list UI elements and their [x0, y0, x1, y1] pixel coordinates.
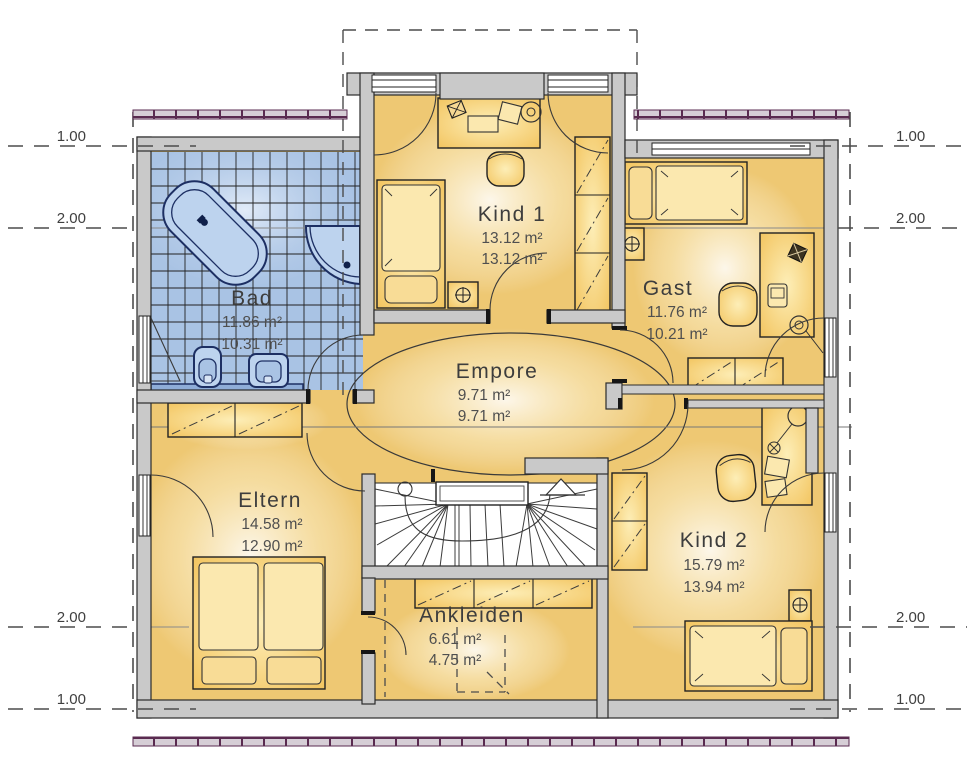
dim-1m-top-left: 1.00 [57, 128, 86, 145]
room-label-kind2: Kind 2 15.79 m² 13.94 m² [680, 529, 749, 596]
room-label-kind1: Kind 1 13.12 m² 13.12 m² [478, 203, 547, 268]
gast-top-window [652, 143, 810, 155]
wall-ankleiden-west-lower [362, 653, 375, 704]
kind2-desk [762, 404, 812, 505]
kind2-chair [715, 453, 758, 503]
toilet [194, 347, 221, 387]
wall-kind1-gast [612, 73, 625, 328]
kind2-nightstand [789, 590, 811, 621]
gast-name: Gast [643, 277, 693, 300]
outer-wall-bottom [137, 700, 838, 718]
wall-stair-top-right [525, 458, 608, 474]
wall-kind2-west [597, 458, 608, 718]
floor-plan-drawing: 1.00 2.00 2.00 1.00 1.00 2.00 2.00 1.00 … [0, 0, 975, 768]
stair-landing [436, 482, 528, 505]
eltern-double-bed [193, 557, 325, 689]
kind2-bed [685, 621, 812, 691]
gast-bed [625, 162, 747, 224]
gast-desk [760, 233, 823, 353]
wall-gast-south [622, 385, 824, 394]
wall-bad-south [137, 390, 310, 403]
dim-2m-bottom-left: 2.00 [57, 609, 86, 626]
gast-chair [719, 283, 757, 326]
empore-area-1: 9.71 m² [458, 387, 511, 404]
kind1-bed [377, 180, 445, 308]
ankleiden-area-1: 6.61 m² [429, 631, 482, 648]
dormer-chimney-block [440, 73, 544, 99]
staircase [375, 479, 597, 567]
dim-1m-top-right: 1.00 [896, 128, 925, 145]
eltern-wardrobe [168, 403, 302, 437]
kind1-area-1: 13.12 m² [481, 230, 542, 247]
outer-wall-right [824, 140, 838, 718]
room-label-eltern: Eltern 14.58 m² 12.90 m² [238, 489, 303, 555]
eltern-name: Eltern [238, 489, 302, 512]
ankleiden-area-2: 4.75 m² [429, 652, 482, 669]
wall-kind1-south-west [374, 310, 490, 323]
kind1-area-2: 13.12 m² [481, 251, 542, 268]
dim-1m-bottom-right: 1.00 [896, 691, 925, 708]
kind1-window-right [548, 75, 608, 92]
wall-stair-left [362, 474, 375, 578]
kind1-name: Kind 1 [478, 203, 547, 226]
kind2-area-2: 13.94 m² [683, 579, 744, 596]
outer-wall-left [137, 137, 151, 718]
bad-area-1: 11.86 m² [222, 314, 282, 331]
kind1-wardrobe [575, 137, 610, 312]
eltern-area-2: 12.90 m² [241, 538, 302, 555]
wall-kind1-south-east [547, 310, 625, 323]
kind1-nightstand [448, 282, 478, 308]
dim-2m-top-left: 2.00 [57, 210, 86, 227]
floor-plan-page: 1.00 2.00 2.00 1.00 1.00 2.00 2.00 1.00 … [0, 0, 975, 768]
dim-1m-bottom-left: 1.00 [57, 691, 86, 708]
kind2-area-1: 15.79 m² [683, 557, 744, 574]
roof-edge-bottom [133, 737, 849, 746]
wall-ankleiden-west-upper [362, 578, 375, 613]
wall-stair-south [362, 566, 608, 579]
kind1-window-left [372, 75, 436, 92]
empore-area-2: 9.71 m² [458, 408, 511, 425]
kind1-desk [438, 98, 541, 148]
roof-edge-top-left [133, 110, 347, 119]
kind2-wardrobe [612, 473, 647, 570]
gast-area-1: 11.76 m² [647, 304, 707, 321]
bad-area-2: 10.31 m² [221, 336, 282, 353]
empore-name: Empore [456, 360, 539, 383]
dim-2m-top-right: 2.00 [896, 210, 925, 227]
eltern-area-1: 14.58 m² [241, 516, 302, 533]
wall-kind2-north [688, 400, 824, 408]
bidet [249, 354, 288, 387]
roof-edge-top-right [634, 110, 849, 119]
bad-name: Bad [231, 287, 273, 310]
wall-niche-right [806, 408, 818, 473]
dim-2m-bottom-right: 2.00 [896, 609, 925, 626]
outer-wall-top-left [137, 137, 363, 151]
wall-bad-kind1 [360, 73, 374, 335]
kind2-name: Kind 2 [680, 529, 749, 552]
gast-area-2: 10.21 m² [646, 326, 707, 343]
kind1-chair [487, 152, 524, 186]
ankleiden-name: Ankleiden [419, 604, 525, 627]
